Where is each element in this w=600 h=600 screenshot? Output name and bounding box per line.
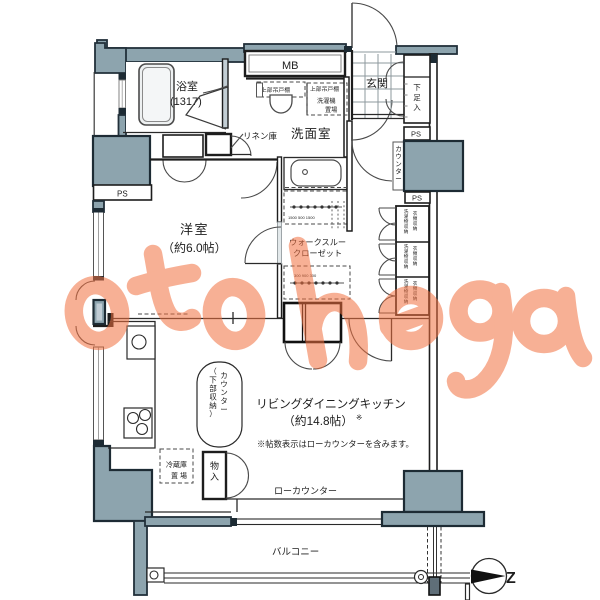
svg-text:下足入: 下足入 (413, 83, 421, 112)
svg-text:（約6.0帖）: （約6.0帖） (162, 240, 227, 255)
svg-text:洗面室: 洗面室 (291, 126, 332, 141)
svg-text:上部吊戸棚: 上部吊戸棚 (310, 85, 339, 93)
svg-text:置場: 置場 (325, 106, 337, 114)
svg-text:衣類収納: 衣類収納 (413, 210, 418, 232)
svg-text:洗濯物収納: 洗濯物収納 (404, 208, 409, 235)
svg-text:1500 500 1500: 1500 500 1500 (288, 215, 315, 220)
svg-text:Z: Z (506, 570, 516, 587)
svg-text:上部吊戸棚: 上部吊戸棚 (261, 86, 290, 94)
svg-text:リネン庫: リネン庫 (243, 131, 278, 141)
svg-text:玄関: 玄関 (366, 76, 388, 90)
svg-text:置 場: 置 場 (171, 471, 187, 480)
svg-text:冷蔵庫: 冷蔵庫 (166, 460, 187, 469)
svg-text:（約14.8帖）: （約14.8帖） (283, 414, 353, 428)
svg-text:洗濯機: 洗濯機 (317, 97, 336, 105)
svg-text:PS: PS (412, 194, 422, 203)
svg-text:ローカウンター: ローカウンター (274, 486, 337, 496)
svg-text:MB: MB (282, 60, 299, 72)
svg-text:※帖数表示はローカウンターを含みます。: ※帖数表示はローカウンターを含みます。 (257, 439, 414, 449)
svg-text:（下部収納）: （下部収納） (209, 367, 217, 419)
svg-text:洗濯物収納: 洗濯物収納 (404, 243, 409, 270)
svg-text:洋室: 洋室 (180, 222, 209, 237)
svg-text:カウンター: カウンター (395, 145, 402, 183)
svg-text:※: ※ (356, 413, 362, 422)
svg-text:リビングダイニングキッチン: リビングダイニングキッチン (256, 397, 405, 411)
svg-text:(1317): (1317) (170, 96, 202, 108)
svg-text:PS: PS (117, 190, 128, 199)
svg-text:衣類収納: 衣類収納 (413, 245, 418, 267)
svg-text:浴室: 浴室 (176, 79, 198, 93)
svg-text:PS: PS (411, 130, 421, 139)
svg-text:バルコニー: バルコニー (272, 547, 319, 558)
svg-text:カウンター: カウンター (220, 371, 228, 414)
